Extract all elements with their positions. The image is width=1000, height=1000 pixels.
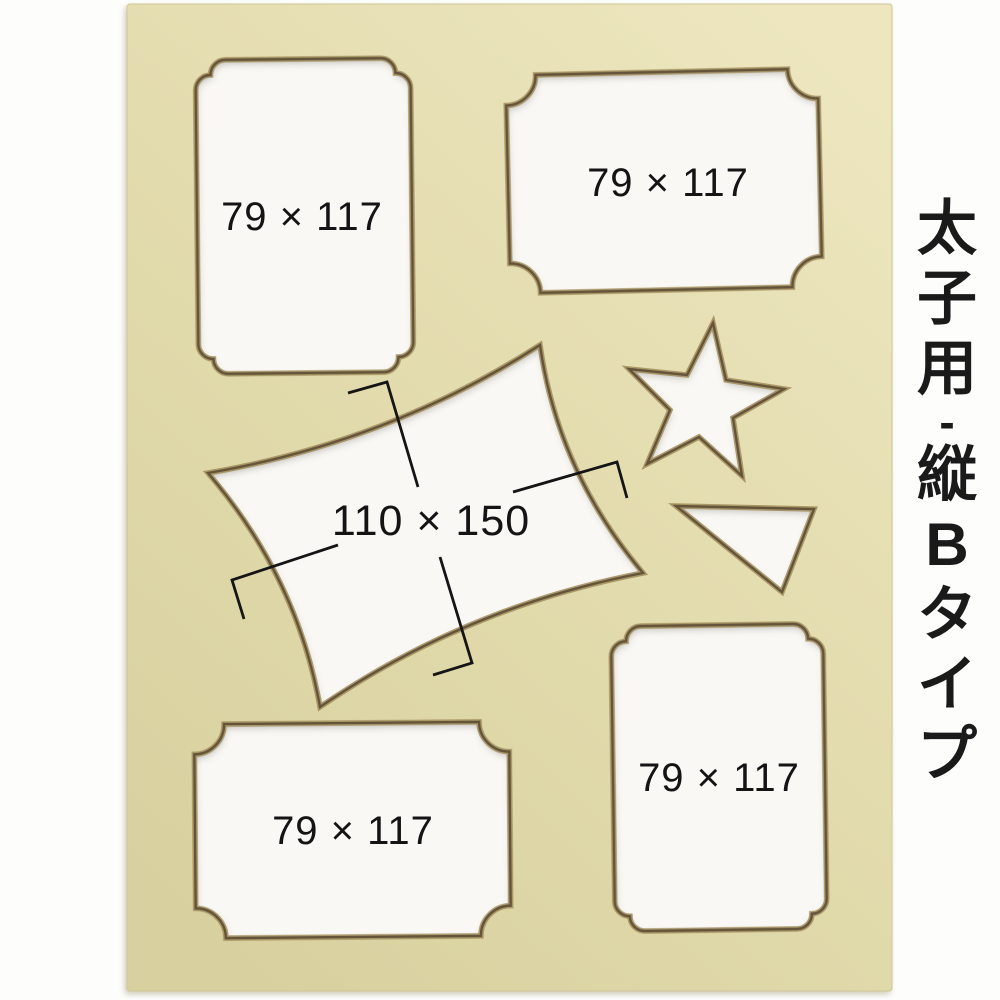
title-char-dash: - — [894, 404, 1000, 440]
dimension-label-bottom-right: 79 × 117 — [638, 756, 800, 800]
title-char: 子 — [894, 264, 1000, 334]
title-char: イ — [894, 650, 1000, 720]
dimension-label-top-right: 79 × 117 — [587, 161, 749, 205]
title-char: プ — [894, 720, 1000, 790]
title-char: 用 — [894, 334, 1000, 404]
vertical-product-title: 太 子 用 - 縦 B タ イ プ — [894, 194, 1000, 790]
dimension-label-bottom-left: 79 × 117 — [272, 809, 434, 853]
title-char: 太 — [894, 194, 1000, 264]
dimension-label-top-left: 79 × 117 — [221, 195, 383, 239]
product-photo: 79 × 117 79 × 117 110 × 150 79 × 117 79 … — [0, 0, 1000, 1000]
title-char: タ — [894, 580, 1000, 650]
title-char: B — [894, 510, 1000, 580]
mat-board-graphic: 79 × 117 79 × 117 110 × 150 79 × 117 79 … — [0, 0, 1000, 1000]
title-char: 縦 — [894, 440, 1000, 510]
dimension-label-center: 110 × 150 — [332, 497, 530, 545]
